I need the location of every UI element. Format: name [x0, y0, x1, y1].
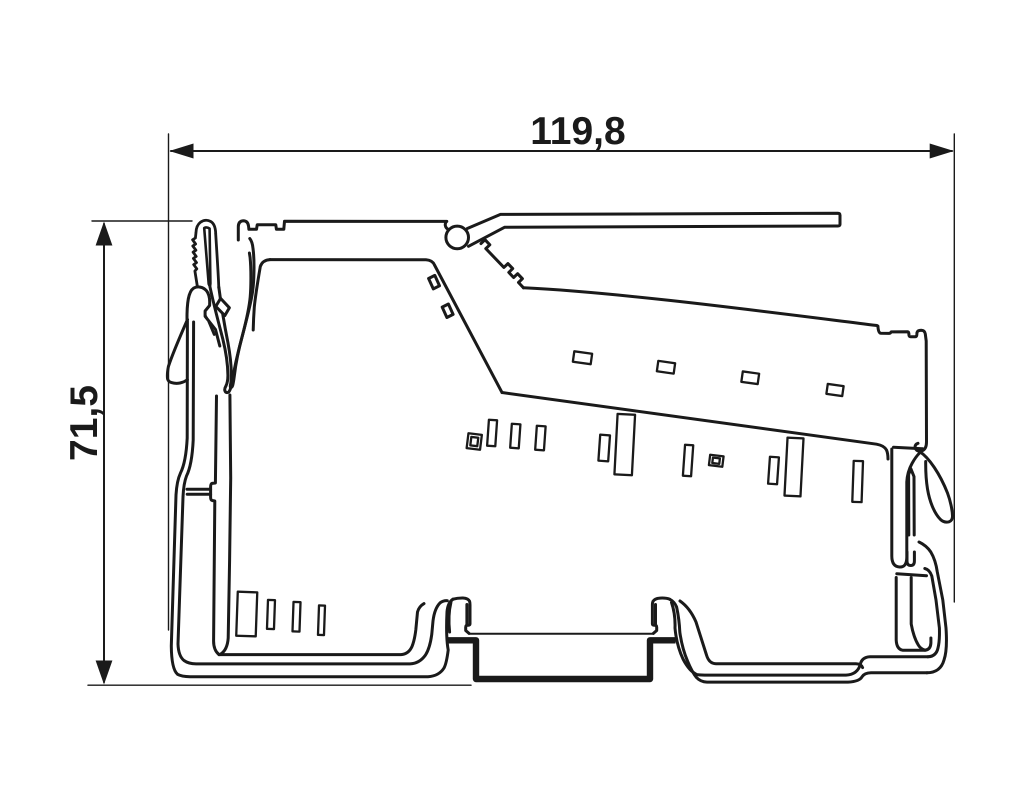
svg-text:119,8: 119,8: [530, 110, 625, 153]
svg-text:71,5: 71,5: [63, 385, 106, 461]
